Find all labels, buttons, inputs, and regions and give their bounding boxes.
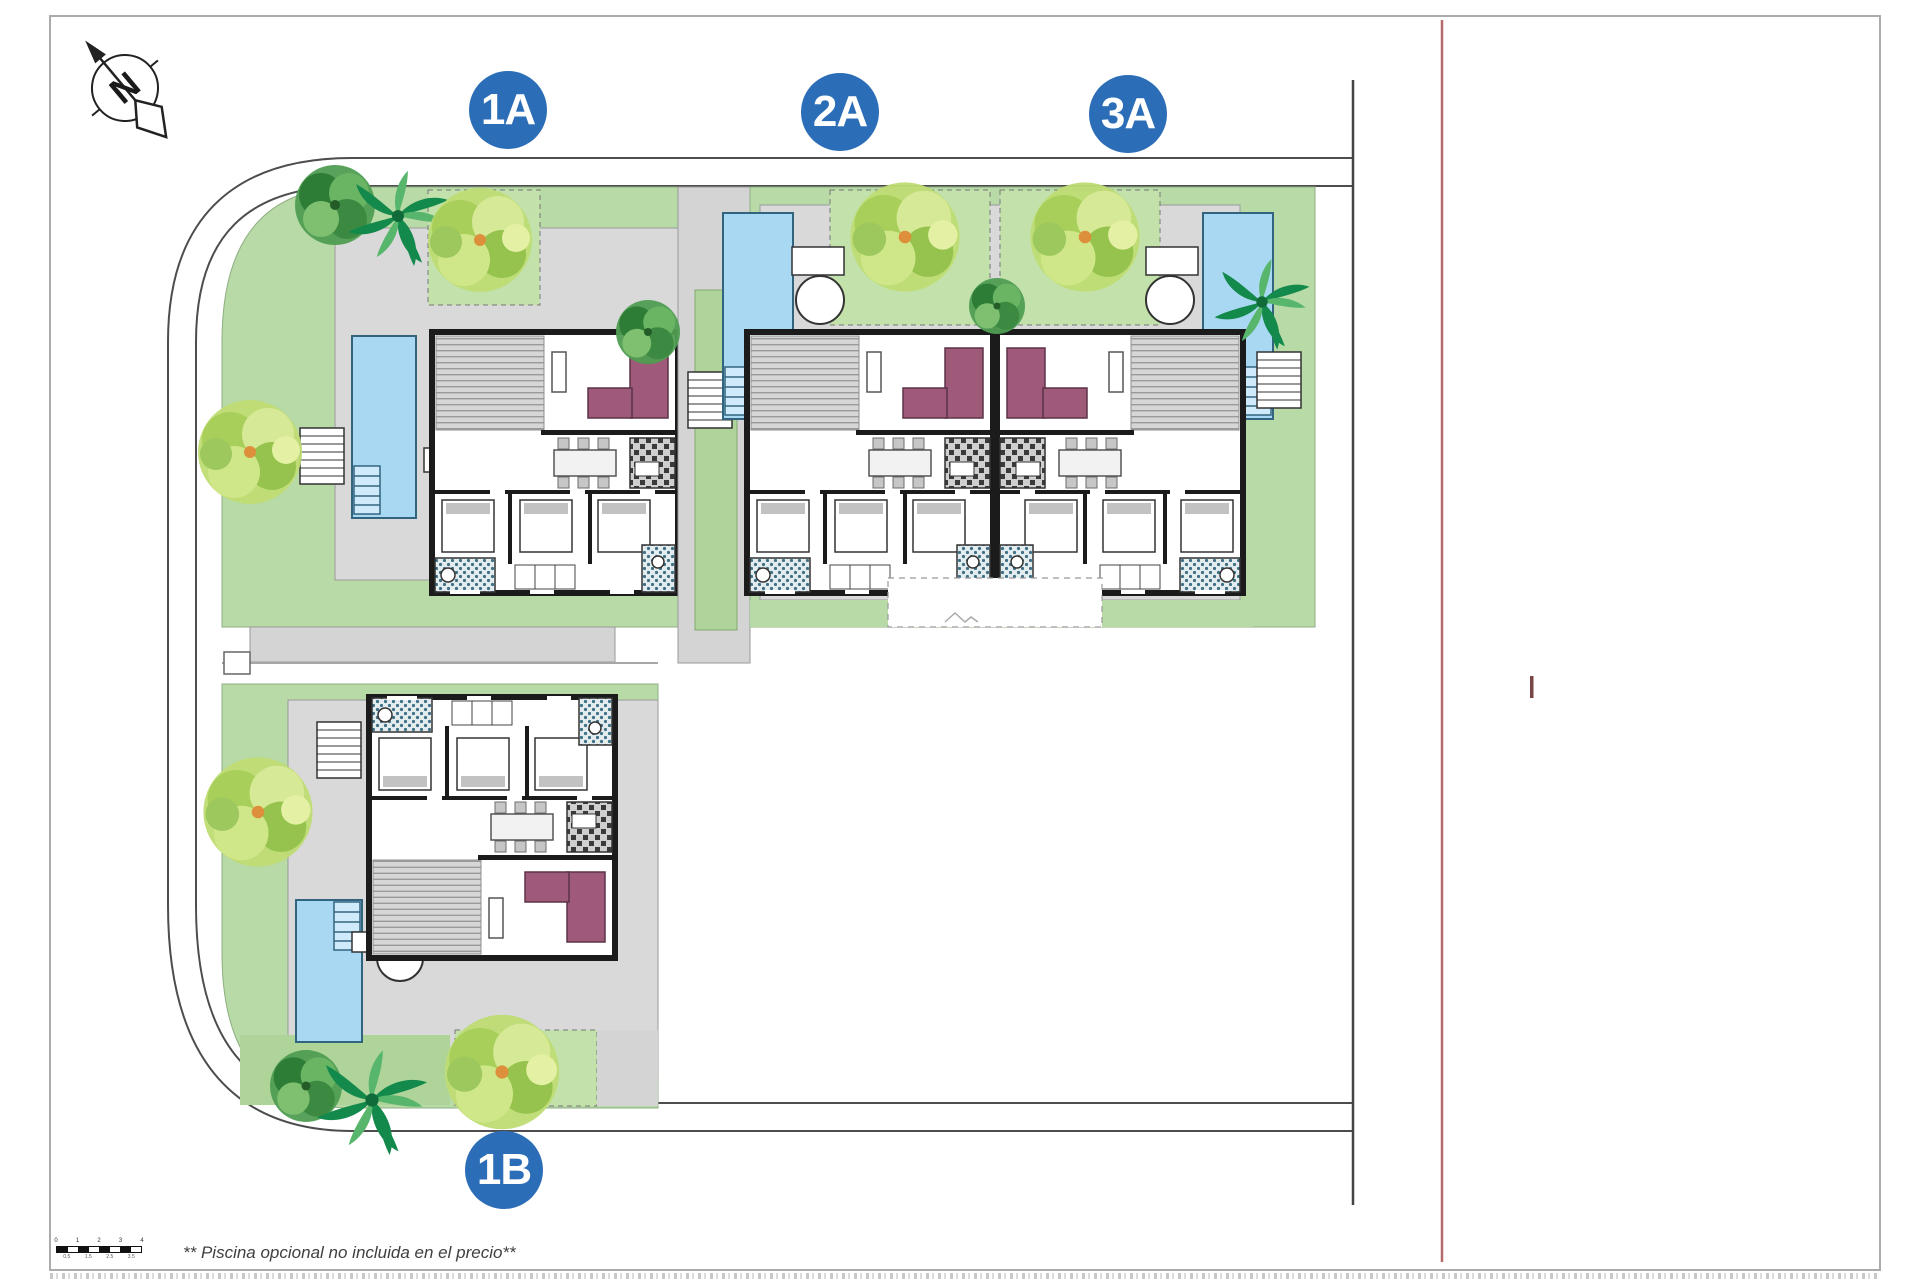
rear-patio xyxy=(888,578,1102,627)
exterior-stairs-3a xyxy=(1257,352,1301,408)
exterior-stairs-1b xyxy=(317,722,361,778)
scale-bar-bottom-labels: 0.5 1.5 2.5 3.5 xyxy=(56,1253,142,1261)
pool-disclaimer-note: ** Piscina opcional no incluida en el pr… xyxy=(183,1243,516,1263)
garden-table-3a xyxy=(1146,276,1194,324)
sun-lounger-3a xyxy=(1146,247,1198,275)
plot-2a-3a xyxy=(723,187,1315,627)
party-wall xyxy=(993,325,997,605)
pool-1a xyxy=(352,336,416,518)
pool-1b xyxy=(296,900,362,1042)
site-plan-page: N 1A 2A 3A 1B ** Piscina opcional no inc… xyxy=(0,0,1920,1280)
scale-bar-top-labels: 0 1 2 3 4 xyxy=(56,1238,142,1246)
villa-badge-3a: 3A xyxy=(1089,75,1167,153)
garden-table-2a xyxy=(796,276,844,324)
north-compass-icon: N xyxy=(52,13,199,165)
plot-1b xyxy=(222,684,658,1108)
villa-badge-1a: 1A xyxy=(469,71,547,149)
gate-1a xyxy=(224,652,250,674)
red-reference-tick xyxy=(1530,676,1534,698)
cropped-text-strip xyxy=(50,1273,1880,1279)
villa-badge-1b: 1B xyxy=(465,1131,543,1209)
sun-lounger-2a xyxy=(792,247,844,275)
villa-badge-2a: 2A xyxy=(801,73,879,151)
site-plan-drawing: N xyxy=(0,0,1920,1280)
house-1a xyxy=(432,332,678,594)
house-3a xyxy=(997,332,1243,594)
house-1b xyxy=(369,696,615,958)
exterior-stairs-1a xyxy=(300,428,344,484)
scale-bar: 0 1 2 3 4 0.5 1.5 2.5 3.5 xyxy=(56,1238,142,1264)
house-2a xyxy=(747,332,993,594)
scale-bar-segments xyxy=(56,1246,142,1253)
